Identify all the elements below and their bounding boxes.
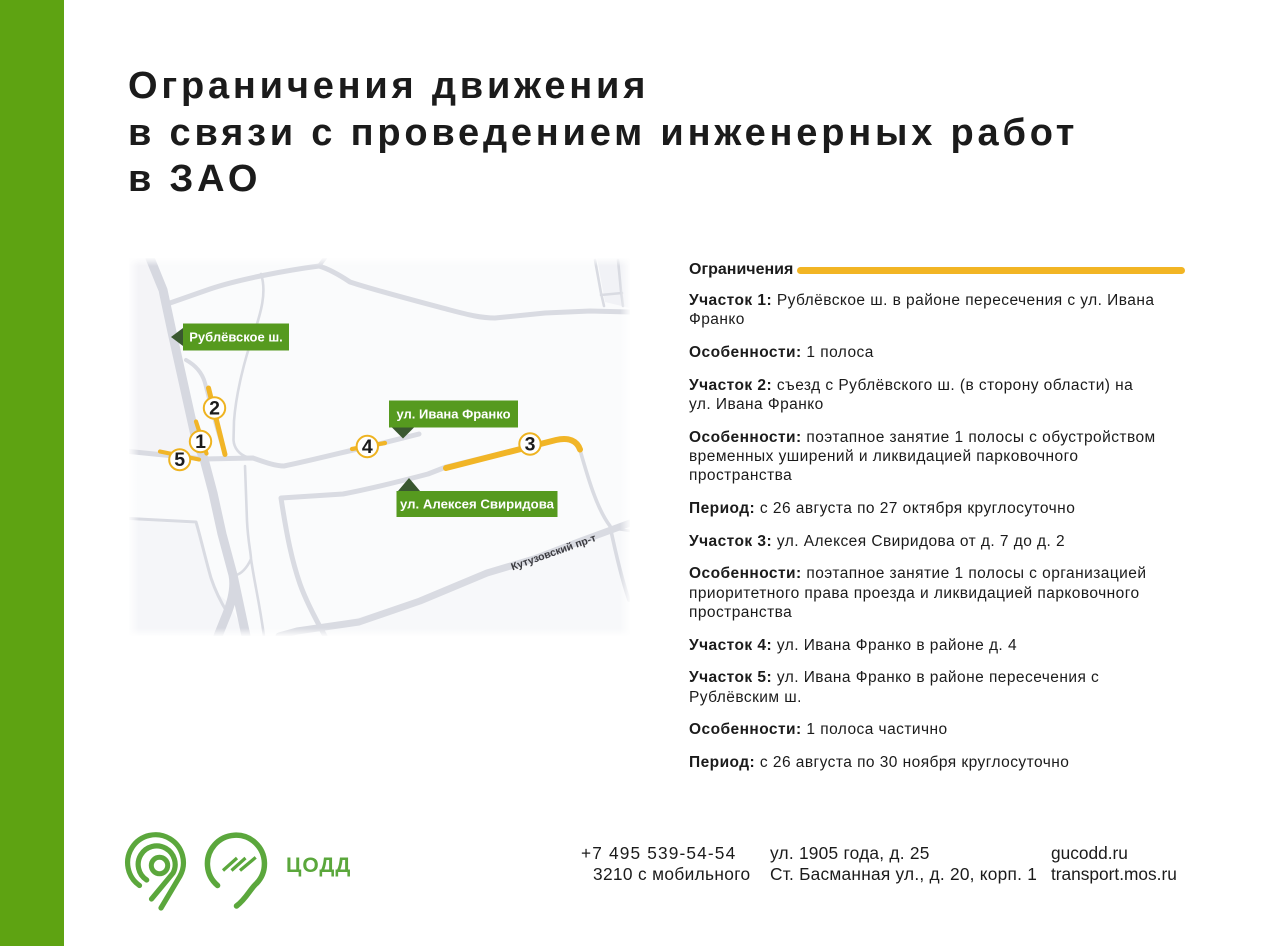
svg-text:4: 4 (362, 436, 373, 458)
svg-text:5: 5 (174, 449, 185, 471)
svg-text:Рублёвское ш.: Рублёвское ш. (189, 330, 283, 345)
svg-text:ЦОДД: ЦОДД (286, 854, 351, 877)
svg-text:2: 2 (209, 398, 220, 420)
svg-text:ул. Алексея Свиридова: ул. Алексея Свиридова (400, 497, 555, 512)
svg-text:3: 3 (525, 434, 536, 456)
svg-text:ул. Ивана Франко: ул. Ивана Франко (396, 407, 510, 422)
svg-text:1: 1 (195, 431, 206, 453)
